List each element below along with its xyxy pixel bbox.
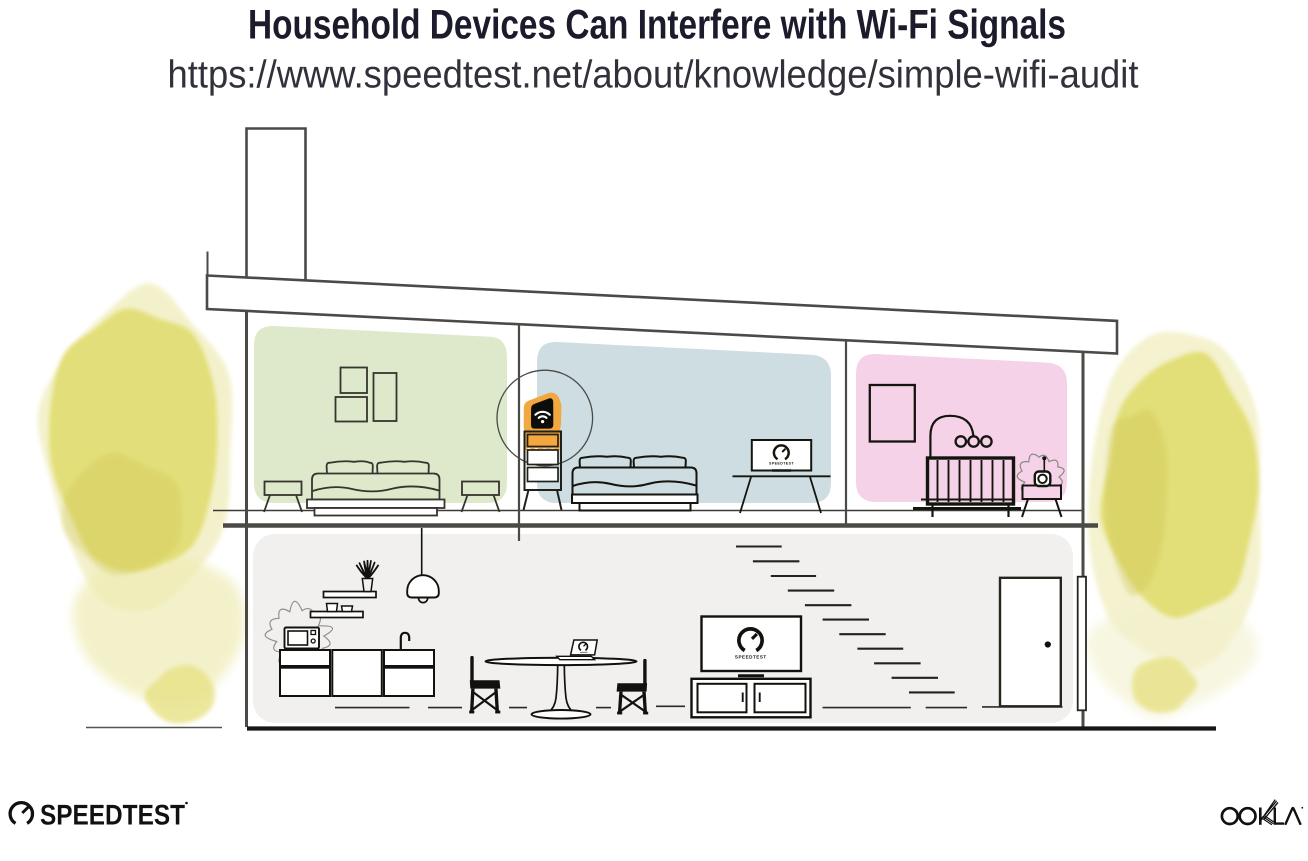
svg-text:SPEEDTEST: SPEEDTEST <box>769 462 794 466</box>
svg-text:Household Devices Can Interfer: Household Devices Can Interfere with Wi-… <box>248 1 1066 48</box>
svg-text:SPEEDTEST: SPEEDTEST <box>40 800 185 832</box>
svg-text:https://www.speedtest.net/abou: https://www.speedtest.net/about/knowledg… <box>168 54 1139 97</box>
svg-text:SPEEDTEST: SPEEDTEST <box>735 654 767 659</box>
